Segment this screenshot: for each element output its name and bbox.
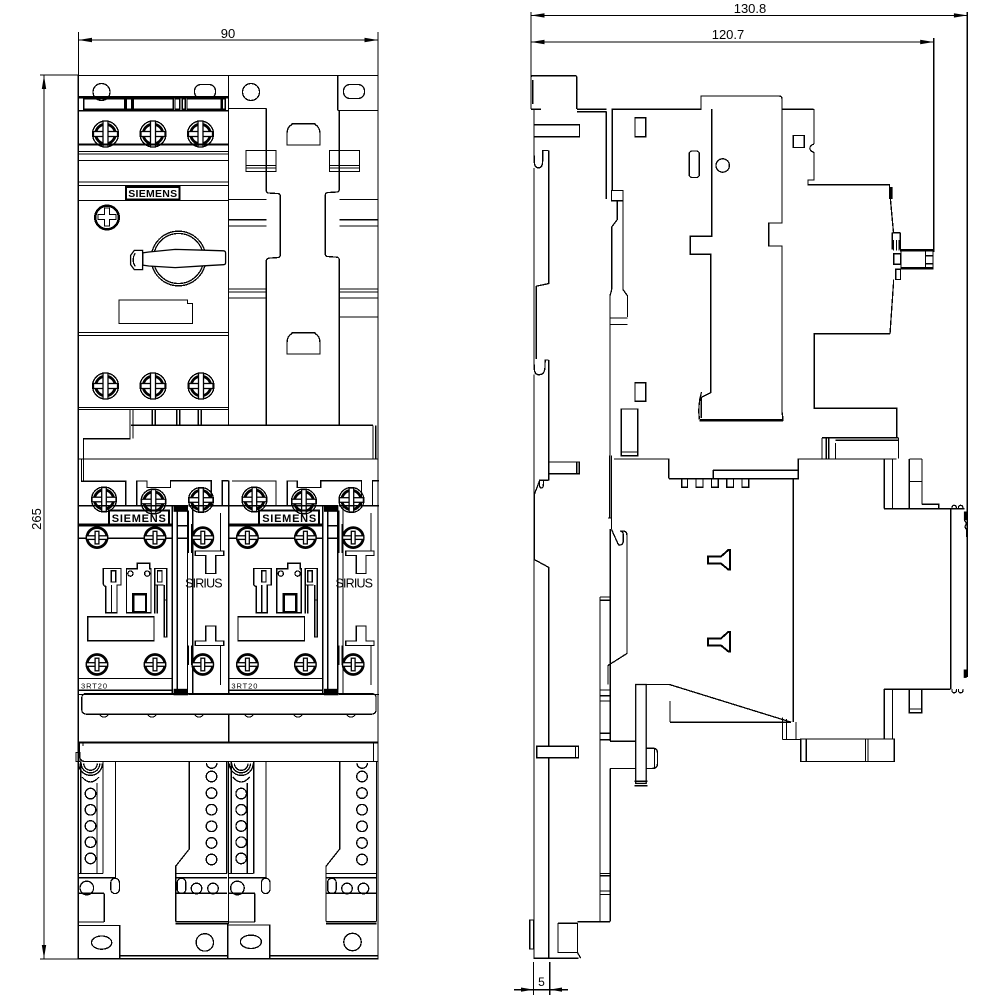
svg-text:SIEMENS: SIEMENS — [128, 188, 177, 200]
svg-text:130.8: 130.8 — [734, 1, 767, 16]
svg-text:265: 265 — [29, 508, 44, 530]
svg-text:120.7: 120.7 — [712, 27, 745, 42]
svg-text:5: 5 — [538, 975, 545, 989]
svg-text:90: 90 — [221, 26, 235, 41]
